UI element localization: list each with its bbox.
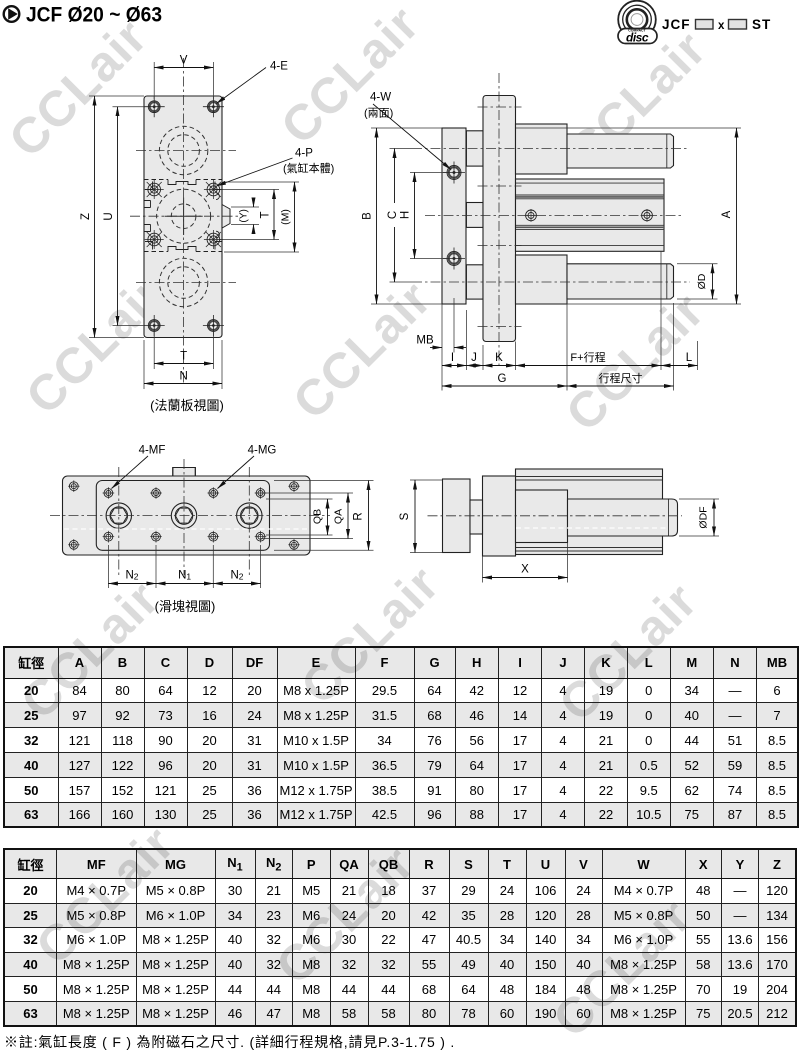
svg-text:Z: Z — [80, 213, 92, 220]
svg-text:4-MF: 4-MF — [139, 445, 166, 457]
svg-text:U: U — [103, 212, 115, 220]
svg-text:T: T — [180, 351, 187, 363]
svg-text:disc: disc — [626, 31, 649, 45]
svg-text:ØDF: ØDF — [698, 506, 710, 528]
svg-text:4-E: 4-E — [270, 61, 288, 73]
svg-text:QA: QA — [333, 509, 345, 524]
svg-text:4-P: 4-P — [295, 148, 313, 160]
svg-text:ST: ST — [752, 17, 771, 32]
svg-text:MB: MB — [416, 335, 434, 347]
svg-text:N1: N1 — [178, 570, 191, 582]
svg-text:C: C — [387, 211, 399, 219]
svg-text:(M): (M) — [280, 209, 292, 225]
svg-text:N2: N2 — [125, 570, 138, 582]
svg-text:行程尺寸: 行程尺寸 — [599, 371, 643, 385]
svg-text:S: S — [399, 512, 411, 520]
svg-text:ØD: ØD — [696, 273, 708, 289]
svg-text:V: V — [180, 55, 188, 67]
svg-text:K: K — [495, 352, 503, 364]
svg-text:N: N — [179, 371, 187, 383]
svg-text:4-W: 4-W — [370, 92, 391, 104]
svg-text:F+行程: F+行程 — [570, 351, 605, 364]
svg-text:QB: QB — [312, 509, 324, 524]
svg-text:(法蘭板視圖): (法蘭板視圖) — [150, 398, 224, 413]
svg-text:B: B — [362, 212, 374, 220]
svg-text:(氣缸本體): (氣缸本體) — [283, 161, 334, 175]
svg-text:JCF: JCF — [662, 17, 691, 32]
svg-text:(滑塊視圖): (滑塊視圖) — [155, 599, 216, 614]
svg-text:L: L — [686, 352, 693, 364]
svg-text:J: J — [471, 352, 477, 364]
svg-text:I: I — [451, 352, 454, 364]
svg-text:H: H — [400, 211, 412, 219]
svg-text:G: G — [498, 373, 507, 385]
svg-text:(Y): (Y) — [239, 209, 250, 222]
svg-text:(兩面): (兩面) — [364, 108, 393, 120]
svg-text:N2: N2 — [230, 570, 243, 582]
svg-text:JCF Ø20 ~ Ø63: JCF Ø20 ~ Ø63 — [26, 4, 162, 27]
svg-text:X: X — [521, 564, 529, 576]
svg-text:T: T — [260, 211, 272, 218]
svg-text:4-MG: 4-MG — [248, 445, 277, 457]
svg-text:A: A — [721, 210, 733, 218]
svg-text:R: R — [353, 512, 365, 520]
svg-text:x: x — [718, 20, 725, 32]
